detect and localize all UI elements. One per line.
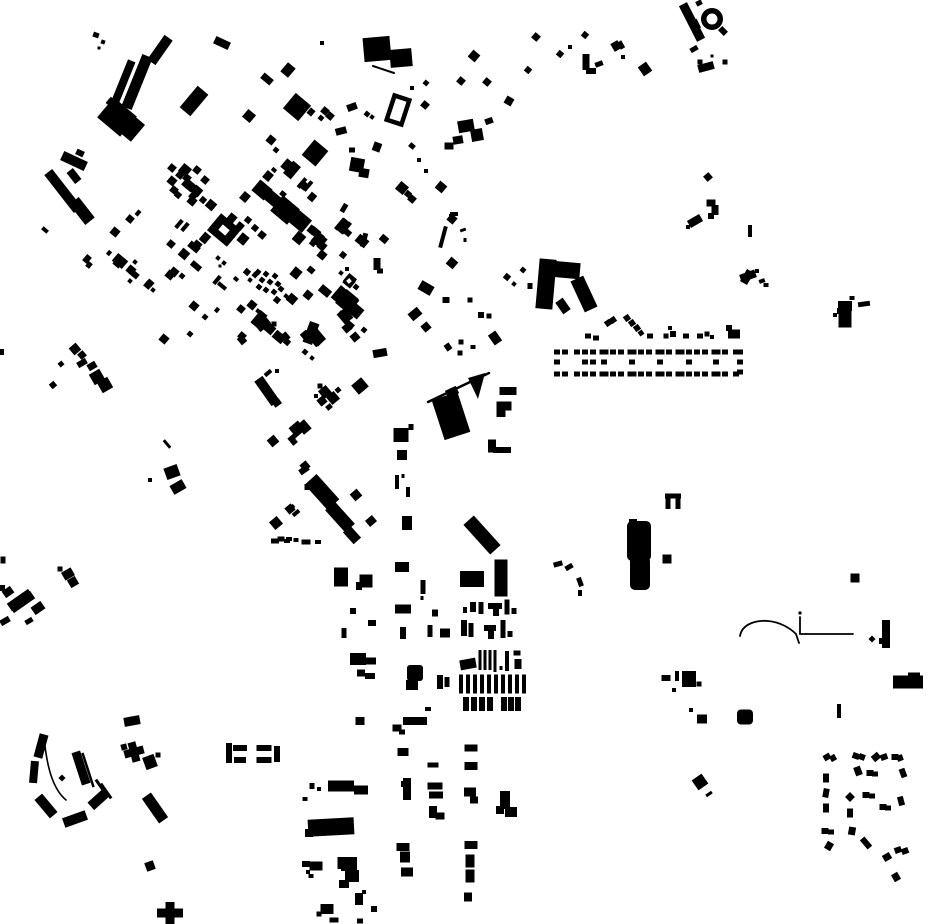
building [515, 697, 521, 711]
building [858, 301, 871, 308]
building [67, 168, 82, 184]
building [823, 774, 829, 783]
building [308, 817, 355, 836]
building [446, 257, 459, 270]
building [868, 635, 875, 642]
building [718, 26, 728, 36]
building [98, 47, 101, 50]
building [307, 192, 318, 203]
building [410, 86, 414, 90]
building [34, 794, 57, 819]
building [459, 340, 464, 345]
building [236, 304, 246, 314]
building [150, 287, 156, 293]
building [402, 516, 412, 530]
building [357, 919, 363, 924]
building [445, 677, 450, 687]
building [362, 890, 366, 894]
building [421, 596, 424, 600]
building [120, 743, 127, 750]
building [262, 286, 269, 293]
building [302, 289, 313, 300]
building [109, 226, 120, 237]
building [86, 361, 97, 372]
building [301, 348, 308, 355]
building [469, 623, 474, 637]
building [705, 791, 712, 797]
building [395, 605, 411, 614]
building [420, 321, 431, 332]
building [234, 757, 246, 763]
building [837, 704, 841, 718]
building [257, 757, 272, 763]
building [470, 602, 476, 612]
building [408, 142, 416, 150]
building [258, 276, 265, 283]
building [568, 45, 572, 49]
building [409, 424, 414, 430]
building [292, 231, 307, 246]
building [574, 350, 580, 355]
building [618, 350, 624, 355]
building [695, 0, 703, 7]
building [871, 752, 882, 763]
building [251, 224, 259, 232]
building [302, 540, 311, 545]
building [372, 348, 387, 358]
building [309, 355, 315, 361]
building [317, 912, 322, 917]
building [458, 351, 463, 356]
building [576, 577, 584, 587]
building [664, 334, 669, 339]
building [583, 54, 590, 70]
building [142, 793, 168, 824]
road-line [44, 737, 66, 800]
building [489, 650, 492, 670]
building [562, 372, 568, 377]
building [262, 170, 274, 182]
building [755, 269, 759, 273]
building [585, 334, 591, 339]
building [199, 232, 212, 245]
building [355, 893, 363, 905]
building [260, 72, 274, 85]
figure-ground-map [0, 0, 930, 924]
building [638, 62, 653, 77]
building [200, 175, 210, 185]
building [192, 165, 202, 175]
building [880, 753, 889, 761]
building [364, 658, 376, 665]
building [309, 874, 314, 878]
building [505, 651, 509, 671]
building [262, 270, 269, 277]
building [494, 675, 498, 694]
building [273, 296, 281, 304]
building [869, 794, 875, 799]
building [167, 163, 177, 173]
building [156, 753, 161, 758]
building [399, 730, 405, 735]
building [505, 600, 510, 615]
building [272, 146, 279, 153]
building [672, 688, 676, 692]
building [398, 748, 409, 756]
building [824, 841, 834, 851]
building [246, 299, 257, 310]
building [29, 761, 39, 784]
building [368, 620, 376, 626]
building [531, 32, 541, 42]
building [578, 590, 582, 596]
building [733, 372, 739, 377]
building [829, 754, 837, 762]
building [428, 763, 439, 768]
building [697, 334, 703, 339]
building [705, 332, 710, 337]
building [226, 743, 232, 763]
building [363, 110, 370, 117]
building [683, 334, 689, 339]
building [360, 326, 367, 333]
building [397, 843, 410, 851]
building [148, 478, 152, 482]
building [188, 300, 199, 311]
building [860, 836, 872, 849]
building [872, 772, 878, 777]
building [271, 167, 277, 173]
building [417, 158, 421, 162]
building [466, 855, 475, 868]
building [519, 266, 526, 273]
building [722, 350, 728, 355]
building [320, 41, 324, 45]
building [100, 39, 105, 44]
building [163, 464, 180, 480]
building [845, 792, 855, 802]
building [269, 516, 283, 530]
building [488, 629, 494, 639]
building [694, 350, 700, 355]
building [302, 861, 310, 867]
building [363, 36, 392, 62]
building [708, 213, 714, 219]
building [358, 168, 369, 179]
building [166, 175, 177, 186]
building [694, 372, 700, 377]
building [257, 230, 267, 240]
building [266, 278, 273, 285]
building [459, 675, 463, 694]
building [406, 680, 418, 690]
building [847, 809, 853, 818]
building [468, 298, 473, 303]
building [479, 697, 485, 711]
building [468, 50, 481, 63]
building [863, 792, 870, 798]
building [310, 862, 323, 871]
building [272, 322, 277, 327]
building [590, 350, 596, 355]
building [401, 868, 413, 877]
building [270, 288, 277, 295]
building [697, 715, 707, 724]
building [147, 35, 172, 65]
building [574, 372, 580, 377]
building [479, 602, 484, 614]
building [425, 707, 431, 711]
building [379, 234, 390, 245]
building [697, 682, 702, 687]
building [610, 372, 616, 377]
building [75, 149, 85, 158]
building [169, 479, 186, 495]
building [328, 781, 354, 792]
building [689, 45, 698, 53]
building [443, 297, 450, 303]
building [712, 350, 721, 355]
building [257, 745, 272, 751]
building [713, 360, 719, 365]
building [882, 620, 890, 648]
building [493, 447, 511, 453]
building [339, 880, 349, 888]
building [377, 269, 383, 274]
building [676, 350, 685, 355]
building [629, 360, 635, 365]
building [438, 226, 448, 248]
building [666, 372, 672, 377]
building [335, 126, 347, 136]
building [452, 135, 463, 145]
building [369, 114, 375, 120]
building [465, 841, 478, 849]
building [686, 350, 692, 355]
building [503, 273, 511, 281]
building [0, 349, 4, 355]
building [495, 560, 508, 597]
building [356, 717, 365, 725]
building [668, 326, 672, 330]
building [349, 331, 360, 342]
building [628, 372, 637, 377]
building [590, 360, 596, 365]
map-canvas [0, 0, 930, 924]
building [205, 199, 218, 212]
building [406, 487, 410, 497]
building [682, 671, 696, 687]
building [303, 797, 308, 801]
building [488, 331, 502, 346]
building [163, 439, 172, 449]
building [394, 428, 409, 442]
building [722, 372, 728, 377]
building [421, 580, 426, 594]
ring-building [704, 11, 721, 28]
building [473, 675, 477, 694]
building [456, 76, 466, 86]
building [317, 114, 324, 121]
building [737, 350, 743, 355]
building [582, 372, 588, 377]
building [698, 60, 703, 65]
building [610, 350, 616, 355]
building [879, 638, 883, 644]
building [402, 474, 405, 478]
building [656, 350, 665, 355]
building [325, 403, 333, 411]
building [41, 226, 49, 234]
building [271, 272, 278, 279]
building [166, 239, 176, 249]
building [274, 746, 280, 762]
building [315, 540, 321, 544]
building [186, 330, 193, 337]
building [471, 345, 476, 349]
building [180, 86, 209, 116]
building [233, 276, 239, 282]
building [590, 372, 596, 377]
building [271, 539, 279, 544]
building [112, 253, 128, 269]
building [487, 314, 492, 319]
building [582, 350, 588, 355]
building [201, 313, 208, 320]
building [586, 68, 596, 74]
building [470, 797, 478, 804]
building [689, 708, 693, 712]
building [686, 225, 690, 229]
building [501, 697, 507, 711]
building [553, 560, 563, 567]
building [158, 333, 169, 344]
building [511, 281, 517, 287]
building [702, 372, 708, 377]
building [828, 830, 834, 835]
building [500, 387, 517, 395]
building [897, 796, 905, 806]
building [501, 620, 506, 638]
building [764, 283, 769, 287]
building [629, 519, 637, 525]
building [395, 475, 399, 489]
building [321, 904, 334, 914]
building [214, 307, 220, 313]
building [504, 96, 515, 107]
building [190, 260, 202, 272]
building [219, 265, 222, 268]
building [444, 342, 453, 351]
building [466, 870, 475, 883]
building [420, 100, 430, 110]
building [244, 216, 252, 224]
building [494, 650, 497, 672]
building [318, 284, 332, 298]
building [49, 381, 57, 389]
building [675, 671, 679, 681]
building [302, 140, 329, 167]
building [823, 804, 829, 813]
building [350, 653, 366, 665]
building [407, 665, 423, 681]
building [437, 675, 443, 689]
building [702, 350, 708, 355]
building [505, 807, 517, 817]
building [125, 214, 135, 224]
building [618, 372, 624, 377]
building [349, 148, 355, 153]
building [470, 128, 484, 142]
building [275, 369, 279, 373]
building [482, 77, 492, 87]
building [330, 918, 339, 923]
building [374, 258, 381, 270]
building [354, 786, 368, 795]
building [497, 409, 506, 417]
building [479, 650, 482, 670]
building [316, 249, 327, 260]
building [480, 675, 484, 694]
building [466, 675, 470, 694]
building [243, 268, 251, 276]
building [62, 810, 88, 828]
building [459, 658, 476, 671]
building [554, 372, 560, 377]
building [594, 60, 603, 67]
building [424, 169, 428, 173]
building [570, 276, 597, 313]
building [853, 766, 863, 777]
building [356, 582, 362, 590]
building [737, 710, 753, 725]
building [286, 293, 299, 306]
building [340, 203, 349, 213]
building [630, 556, 650, 590]
building [280, 62, 295, 78]
building [627, 521, 651, 561]
building [247, 277, 253, 283]
building [463, 697, 469, 711]
building [255, 283, 262, 290]
building [334, 568, 348, 587]
building [365, 673, 375, 679]
building [899, 768, 908, 779]
building [676, 372, 685, 377]
building [371, 906, 377, 912]
building [57, 360, 64, 367]
building [417, 280, 434, 296]
building [487, 697, 493, 711]
building [408, 307, 423, 322]
building [314, 394, 318, 398]
building [638, 350, 644, 355]
building [662, 675, 671, 681]
building [346, 102, 358, 112]
building [522, 675, 526, 694]
building [267, 435, 280, 448]
building [647, 334, 653, 339]
building [582, 360, 588, 365]
building [850, 296, 855, 300]
building [551, 261, 580, 279]
building [464, 238, 467, 242]
building [665, 494, 681, 499]
building [432, 392, 471, 440]
building [646, 372, 652, 377]
building [0, 585, 5, 591]
building [901, 847, 910, 855]
